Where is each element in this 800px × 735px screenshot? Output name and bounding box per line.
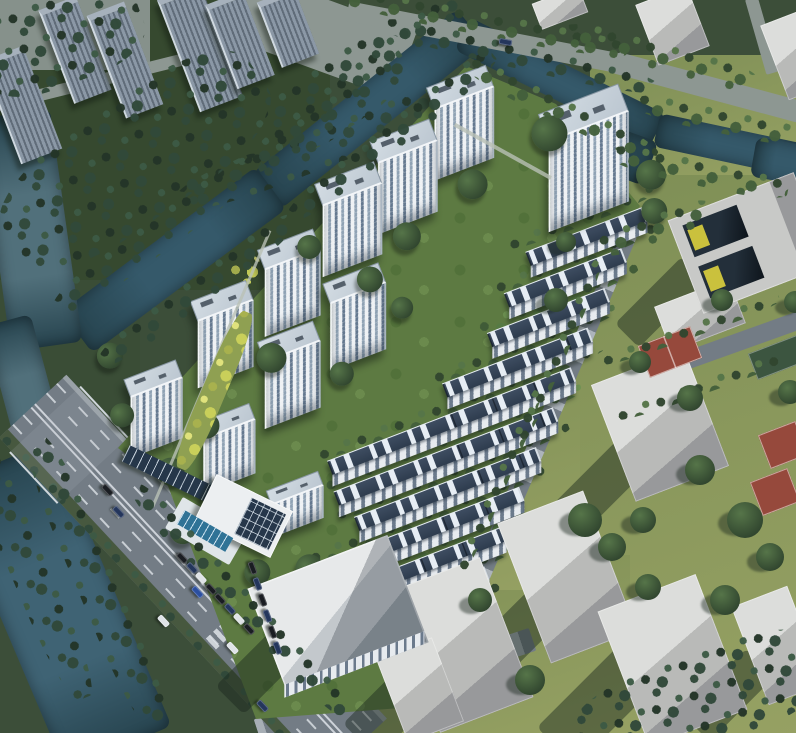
tree-cluster <box>710 585 740 615</box>
courtyard-planting <box>703 265 726 291</box>
tree-cluster <box>727 502 763 538</box>
tree-cluster <box>685 455 715 485</box>
aerial-rendering: Bird's-eye CGI masterplan of a riverside… <box>0 0 800 735</box>
clubhouse-solar-roof <box>234 498 286 551</box>
tree-cluster <box>515 665 545 695</box>
tree-cluster <box>556 232 576 252</box>
tree-cluster <box>711 289 733 311</box>
tree-cluster <box>629 351 651 373</box>
tree-cluster <box>568 503 602 537</box>
tree-cluster <box>598 533 626 561</box>
frame-right <box>796 0 800 735</box>
tree-cluster <box>756 543 784 571</box>
school-courtyard <box>698 246 764 299</box>
tree-cluster <box>635 574 661 600</box>
tree-cluster <box>630 507 656 533</box>
tree-cluster <box>677 385 703 411</box>
tree-cluster <box>544 288 568 312</box>
tree-cluster <box>468 588 492 612</box>
